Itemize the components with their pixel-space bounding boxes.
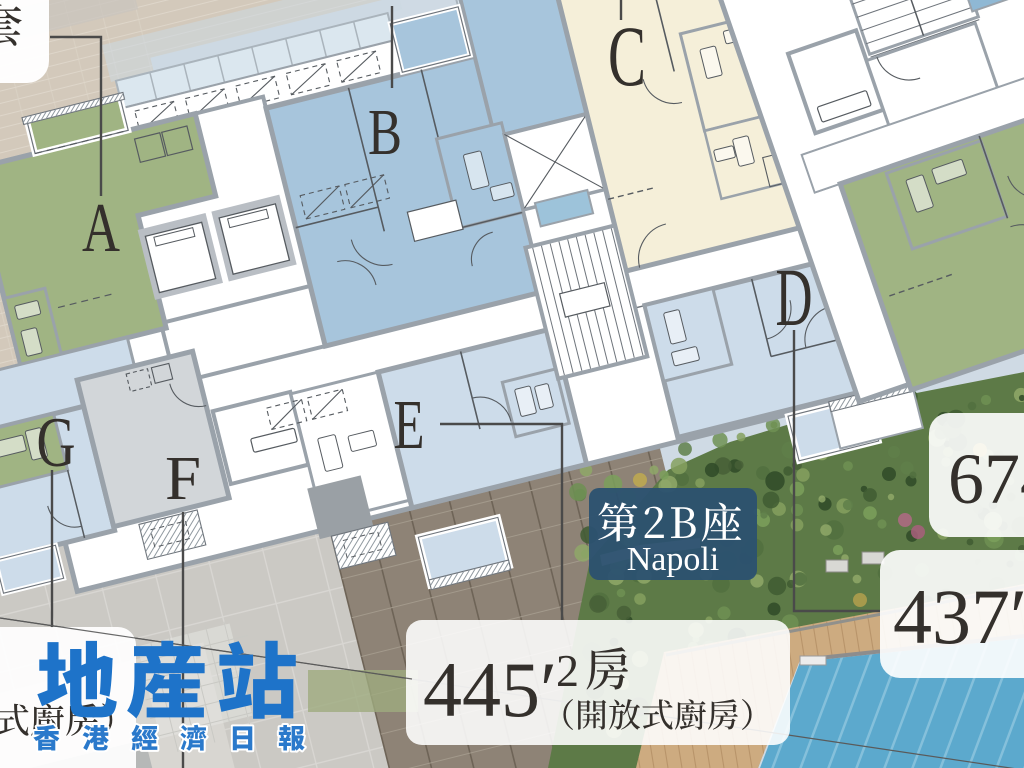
svg-text:445′: 445′ <box>423 646 557 733</box>
svg-text:E: E <box>394 387 425 464</box>
svg-text:A: A <box>82 190 120 267</box>
svg-text:C: C <box>608 8 646 104</box>
svg-text:B: B <box>368 96 402 169</box>
svg-text:437′: 437′ <box>893 573 1024 660</box>
svg-text:F: F <box>165 445 201 513</box>
svg-text:G: G <box>37 404 76 482</box>
svg-text:D: D <box>776 251 813 343</box>
svg-text:674: 674 <box>948 439 1024 519</box>
svg-text:2: 2 <box>556 645 579 696</box>
svg-text:Napoli: Napoli <box>627 541 720 578</box>
